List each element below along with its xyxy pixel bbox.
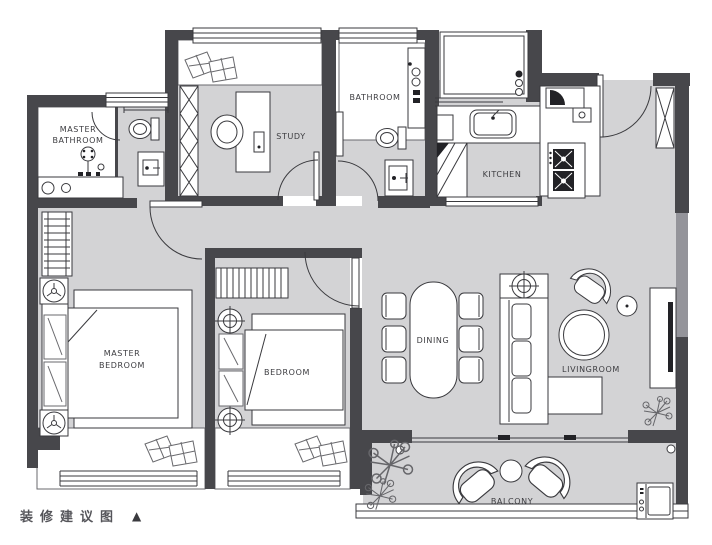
fan-symbol <box>43 280 65 302</box>
desk-chair <box>211 115 243 149</box>
balcony-table <box>500 460 522 482</box>
study-label: STUDY <box>276 132 305 141</box>
master-bathroom-label: BATHROOM <box>52 136 103 145</box>
balcony-label: BALCONY <box>491 497 533 506</box>
stove <box>548 143 585 198</box>
bedroom-label: BEDROOM <box>264 368 310 377</box>
wardrobe <box>180 86 198 196</box>
bathroom-window <box>339 28 417 43</box>
washing-machine <box>637 483 673 519</box>
kitchen-window-box <box>435 32 528 106</box>
caption-text: 装修建议图 <box>20 506 120 525</box>
kitchen-label: KITCHEN <box>483 170 522 179</box>
floor-plan-drawing: MASTER BATHROOM STUDY BATHROOM KITCHEN M… <box>0 0 712 545</box>
closet-rack <box>216 268 288 298</box>
kitchen-passthrough-window <box>446 197 538 206</box>
drying-rack <box>42 212 72 276</box>
entry-shoe-cabinet <box>656 88 674 148</box>
coffee-table <box>559 310 609 360</box>
floor-plan: MASTER BATHROOM STUDY BATHROOM KITCHEN M… <box>0 0 712 545</box>
tv-cabinet <box>650 288 676 388</box>
bath-sink <box>385 160 413 196</box>
small-table <box>617 296 637 316</box>
bed <box>42 290 192 428</box>
master-bedroom-label: BEDROOM <box>99 361 145 370</box>
wc-basin <box>138 152 164 186</box>
master-bedroom-label: MASTER <box>104 349 141 358</box>
livingroom-label: LIVINGROOM <box>562 365 620 374</box>
bath-shelf <box>408 48 425 128</box>
master-bathroom-window <box>106 93 168 107</box>
fan-symbol <box>43 412 65 434</box>
toilet-symbol <box>129 118 159 140</box>
bathroom-label: BATHROOM <box>349 93 400 102</box>
plan-caption: 装修建议图▲ <box>20 506 141 525</box>
vanity-sink <box>38 177 123 198</box>
triangle-marker: ▲ <box>132 509 141 523</box>
toilet-symbol <box>376 127 406 149</box>
study-window <box>193 28 321 43</box>
kitchen-sink <box>470 110 516 138</box>
master-bathroom-label: MASTER <box>60 125 97 134</box>
dining-label: DINING <box>417 336 450 345</box>
